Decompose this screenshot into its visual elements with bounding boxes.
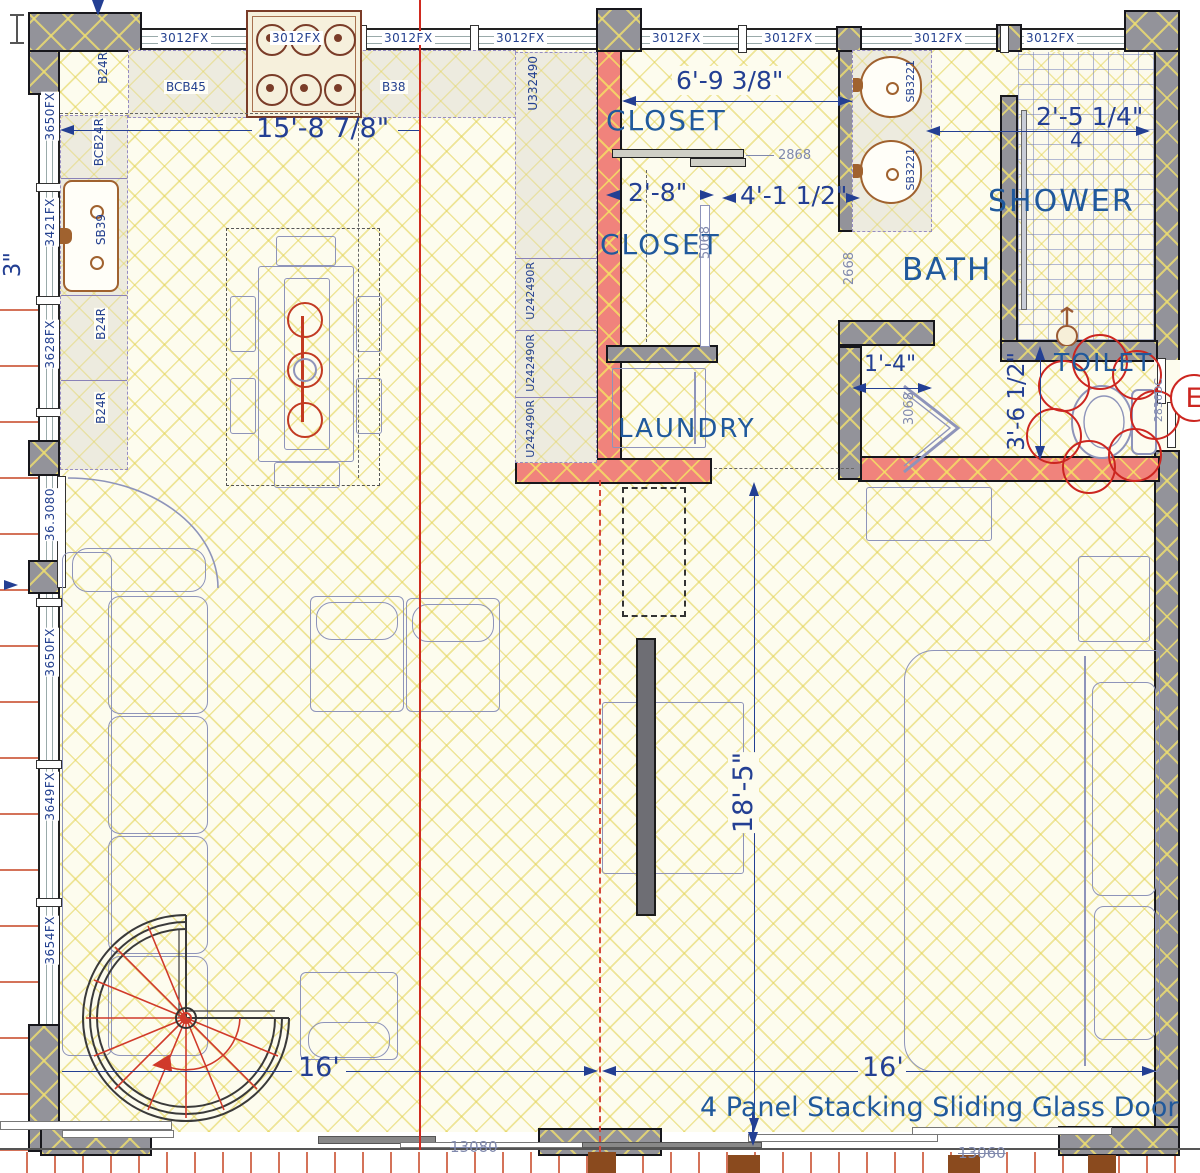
faucet-spout — [60, 228, 72, 244]
left-door-jamb-bottom — [28, 560, 60, 594]
window-label-top-4: 3012FX — [494, 31, 547, 45]
dim-arrow — [1035, 446, 1045, 460]
ceiling-fan-hub — [293, 358, 317, 382]
dining-chair — [356, 296, 382, 352]
junction-closet-top — [596, 8, 642, 52]
top-left-dim-bracket — [10, 42, 24, 44]
vanity-label-sb3221-2: SB3221 — [904, 148, 917, 191]
lounge-chair-back — [412, 604, 494, 642]
bypass-door-panel — [612, 149, 744, 158]
dim-arrow — [584, 1066, 598, 1076]
window-label-top-3: 3012FX — [382, 31, 435, 45]
burner-center — [300, 84, 308, 92]
window-label-top-5: 3012FX — [650, 31, 703, 45]
mullion — [470, 25, 479, 53]
glass-door-note-arrow-stem — [752, 1112, 754, 1134]
dim-shower-line — [930, 131, 1148, 132]
glass-panel — [400, 1142, 600, 1148]
construction-line-vertical — [419, 0, 421, 1150]
deck-post — [728, 1155, 760, 1173]
dim-kitchen-line — [398, 130, 419, 131]
room-label-closet-upper: CLOSET — [606, 104, 727, 137]
dim-living-text: 18'-5" — [728, 752, 759, 833]
cabinet-label-u242490r-2: U242490R — [524, 334, 537, 392]
bed-pillow — [1094, 906, 1156, 1040]
window-label-top-7: 3012FX — [912, 31, 965, 45]
revision-tag-letter: E — [1185, 383, 1200, 414]
cabinet-label-bcb24r: BCB24R — [92, 118, 106, 166]
dim-toiletd-line — [1040, 352, 1041, 454]
corner-block-tl — [28, 12, 142, 52]
sink-faucet — [853, 164, 863, 178]
room-label-laundry: LAUNDRY — [618, 414, 756, 444]
cabinet-label-b24r-1: B24R — [94, 308, 108, 340]
glass-panel — [748, 1134, 938, 1142]
lounge-chair-back — [316, 602, 398, 640]
bypass-door-leader — [746, 155, 774, 156]
shower-head-icon — [1045, 298, 1087, 346]
dim-shower-text: 2'-5 1/4" — [1036, 102, 1143, 131]
cabinet-label-u242490r-1: U242490R — [524, 262, 537, 320]
door-label-3068: 3068 — [902, 392, 917, 425]
dining-chair — [276, 236, 336, 266]
dining-chair — [230, 378, 256, 434]
cabinet-label-bcb45: BCB45 — [164, 80, 208, 94]
room-label-bath: BATH — [902, 252, 992, 288]
cabinet-label-sb39: SB39 — [94, 214, 108, 245]
dim-toiletwall-text: 1'-4" — [864, 352, 916, 377]
nightstand — [1078, 556, 1150, 642]
mullion — [36, 898, 62, 907]
dim-arrow — [846, 193, 860, 203]
deck-post — [588, 1152, 616, 1173]
bypass-door-panel — [690, 158, 746, 167]
glass-door-note: 4 Panel Stacking Sliding Glass Door — [700, 1092, 1179, 1123]
dim-closetd2-text: 4'-1 1/2" — [740, 181, 847, 210]
counter-divider — [61, 380, 127, 381]
dim-closet-text: 6'-9 3/8" — [672, 66, 787, 95]
cabinet-label-b24r-2: B24R — [94, 392, 108, 424]
tall-cabinet-divider — [516, 258, 596, 259]
window-label-left-4: 3650FX — [41, 628, 59, 677]
door-label-13060: 13060 — [958, 1144, 1006, 1162]
dim-kitchen-line — [64, 130, 252, 131]
mullion — [1000, 25, 1009, 53]
sink-drain — [886, 82, 899, 95]
mullion — [36, 183, 62, 192]
window-label-left-5: 3649FX — [41, 772, 59, 821]
right-wall — [1154, 28, 1180, 362]
sofa-seat — [108, 596, 208, 714]
kitchen-zone-dash-v — [358, 113, 359, 478]
dim-shower-sub: 4 — [1070, 128, 1083, 152]
tv-panel — [636, 638, 656, 916]
mullion — [36, 760, 62, 769]
burner-center — [334, 84, 342, 92]
dim-closetd1-text: 2'-8" — [628, 178, 687, 207]
window-label-top-6: 3012FX — [762, 31, 815, 45]
window-label-left-1: 3650FX — [41, 92, 59, 141]
window-label-top-2: 3012FX — [270, 31, 323, 45]
glass-panel — [582, 1142, 762, 1148]
burner-center — [334, 34, 342, 42]
glass-panel — [912, 1127, 1112, 1135]
left-door-label: 36.3080 — [41, 488, 59, 541]
cabinet-label-b38: B38 — [380, 80, 408, 94]
dim-arrow — [926, 126, 940, 136]
window-label-top-1: 3012FX — [158, 31, 211, 45]
dim-16l-line — [346, 1071, 592, 1072]
dim-16l-text: 16' — [298, 1052, 340, 1083]
door-label-2836dc: 2836DC — [1152, 378, 1165, 422]
dim-arrow — [700, 190, 714, 200]
tall-cabinet-divider — [516, 397, 596, 398]
dim-16l-line — [62, 1071, 292, 1072]
dim-arrow — [1142, 1066, 1156, 1076]
bed-pillow — [1092, 682, 1156, 896]
top-edge-arrow — [92, 0, 104, 16]
window-label-left-2: 3421FX — [41, 198, 59, 247]
mullion — [36, 296, 62, 305]
sink-faucet — [853, 78, 863, 92]
dim-arrow — [606, 190, 620, 200]
sofa-arm-cushion — [72, 548, 206, 592]
appliance-space-dashed — [622, 487, 686, 617]
dim-arrow — [60, 125, 74, 135]
dim-arrow — [749, 482, 759, 496]
media-console — [602, 702, 744, 874]
mullion — [36, 408, 62, 417]
dim-arrow — [838, 96, 852, 106]
left-door-jamb-top — [28, 440, 60, 476]
dim-16r-text: 16' — [862, 1052, 904, 1083]
dining-chair — [274, 462, 340, 488]
tall-cabinet-divider — [516, 330, 596, 331]
dim-arrow — [622, 96, 636, 106]
room-label-shower: SHOWER — [988, 184, 1135, 219]
dining-chair — [230, 296, 256, 352]
toilet-partition-top — [838, 320, 935, 346]
vanity-label-sb3221-1: SB3221 — [904, 60, 917, 103]
dim-kitchen-text: 15'-8 7/8" — [256, 113, 389, 144]
dim-toiletd-text: 3'-6 1/2" — [1004, 352, 1030, 451]
dining-chair — [356, 378, 382, 434]
left-margin-arrow — [4, 580, 18, 590]
window-label-top-8: 3012FX — [1024, 31, 1077, 45]
dim-arrow — [748, 1132, 758, 1146]
deck-post — [1088, 1155, 1116, 1173]
door-label-2868: 2868 — [778, 148, 811, 163]
closet-laundry-divider — [606, 345, 718, 363]
cabinet-label-u242490r-3: U242490R — [524, 400, 537, 458]
revision-cloud-arc — [1108, 428, 1162, 482]
dim-16r-line — [906, 1071, 1152, 1072]
pendant-light — [287, 402, 323, 438]
room-label-toilet: TOILET — [1054, 348, 1153, 377]
corner-block-tr — [1124, 10, 1180, 52]
mullion — [738, 25, 747, 53]
window-label-left-3: 3628FX — [41, 320, 59, 369]
bed-headboard-line — [1084, 656, 1086, 1066]
dresser — [866, 487, 992, 541]
top-left-dim-bracket — [16, 14, 18, 44]
corner-block-tl2 — [28, 50, 60, 95]
revision-cloud-arc — [1062, 440, 1116, 494]
faucet-dot — [90, 256, 104, 270]
window-label-left-6: 3654FX — [41, 916, 59, 965]
opening-header-dash — [714, 468, 854, 469]
counter-divider — [61, 295, 127, 296]
door-label-5068: 5068 — [698, 226, 713, 259]
sink-drain — [886, 168, 899, 181]
cabinet-label-corner: B24R — [96, 52, 110, 84]
dim-left-partial: 3" — [0, 252, 26, 277]
dim-arrow — [722, 193, 736, 203]
dim-arrow — [852, 383, 866, 393]
pendant-light — [287, 302, 323, 338]
sofa-seat — [108, 716, 208, 834]
door-label-2668: 2668 — [842, 252, 857, 285]
dim-arrow — [1035, 346, 1045, 360]
door-label-13080: 13080 — [450, 1138, 498, 1156]
spiral-staircase — [78, 905, 302, 1141]
deck-boards-left — [0, 255, 38, 1152]
toilet-partition-left — [838, 346, 862, 480]
floor-plan: E CLOSET CLOSET LAUNDRY BATH SHOWER TOIL… — [0, 0, 1200, 1173]
cabinet-label-u332490: U332490 — [526, 56, 540, 111]
dim-arrow — [918, 383, 932, 393]
burner-center — [266, 84, 274, 92]
centerline-dashed — [599, 480, 601, 1152]
dim-16r-line — [614, 1071, 858, 1072]
junction-bath-top — [836, 26, 862, 52]
dim-closet-line — [624, 101, 852, 102]
mullion — [36, 598, 62, 607]
